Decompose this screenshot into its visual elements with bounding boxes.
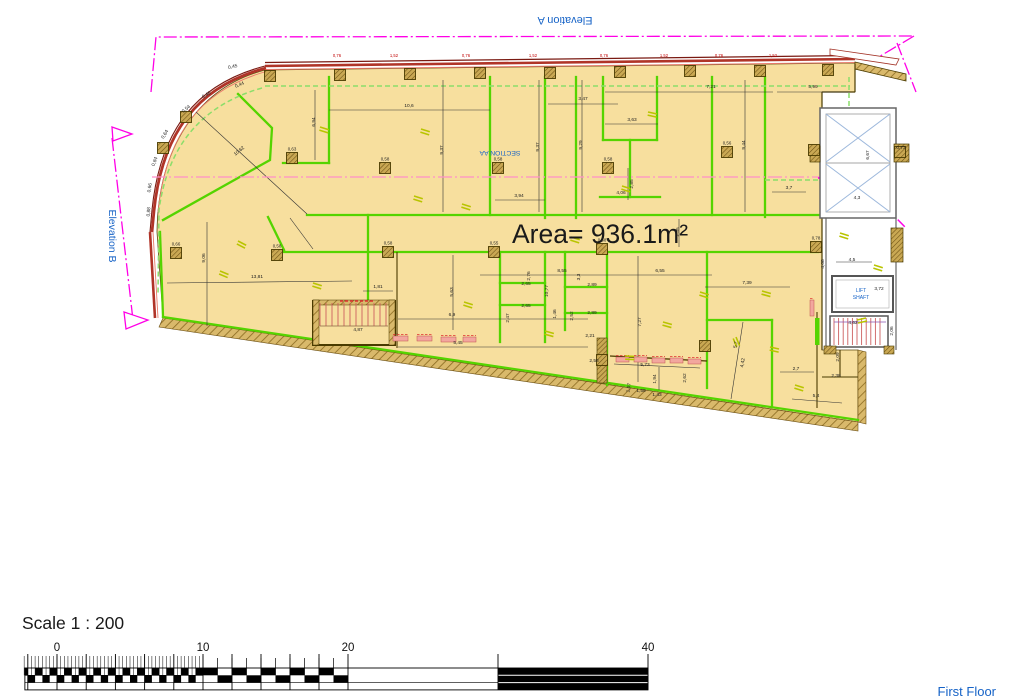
column-size-label: 0,56 — [723, 141, 732, 146]
dimension-label: 2,38 — [831, 373, 841, 379]
dimension-label: 1,46 — [552, 309, 558, 319]
dimension-label: 0,76 — [715, 53, 724, 58]
checker — [72, 675, 79, 682]
scale-tick-label: 0 — [54, 642, 60, 654]
dimension-label: 2,65 — [521, 281, 531, 287]
solid-block — [498, 668, 648, 690]
column-size-label: 0,78 — [812, 236, 821, 241]
column-icon — [158, 143, 169, 154]
elevation-b-label: Elevation B — [106, 209, 118, 262]
window-sill — [634, 357, 647, 362]
dimension-label: 7,39 — [742, 280, 752, 286]
dimension-label: 0,64 — [160, 129, 170, 140]
checker — [247, 675, 262, 682]
checker — [130, 675, 137, 682]
column-icon — [272, 250, 283, 261]
column-size-label: 0,58 — [381, 157, 390, 162]
dimension-label: 2,06 — [889, 326, 895, 336]
checker — [218, 675, 233, 682]
column-icon — [755, 66, 766, 77]
dimension-label: 3,47 — [578, 96, 588, 102]
window-sill — [688, 359, 701, 364]
dimension-label: 10,6 — [404, 103, 414, 109]
column-size-label: 0,63 — [288, 147, 297, 152]
column-icon — [383, 247, 394, 258]
lift-shaft-label-line2: SHAFT — [853, 295, 869, 301]
stairs-right — [830, 316, 888, 347]
column-icon — [545, 68, 556, 79]
scale-tick-label: 40 — [642, 642, 655, 654]
checker — [188, 675, 195, 682]
dimension-label: 1,52 — [769, 53, 778, 58]
dimension-label: 0,88 — [146, 207, 153, 217]
dimension-label: 1,52 — [390, 53, 399, 58]
column-icon — [809, 145, 820, 156]
dimension-label: 3,7 — [786, 185, 793, 191]
dimension-label: 2,65 — [521, 303, 531, 309]
dimension-label: 1,94 — [652, 374, 658, 384]
checker — [174, 675, 181, 682]
scale-bar: 0102040 — [24, 642, 654, 690]
window-sill — [810, 300, 814, 316]
dimension-label: 1,58 — [636, 388, 646, 394]
checker — [28, 675, 35, 682]
dimension-label: 2,89 — [587, 310, 597, 316]
checker — [319, 668, 334, 675]
dimension-label: 10,77 — [544, 285, 550, 297]
dimension-label: 0,84 — [151, 156, 160, 167]
column-icon — [405, 69, 416, 80]
column-size-label: 0,58 — [494, 157, 503, 162]
window-sill — [463, 337, 476, 342]
dimension-label: 0,45 — [228, 63, 239, 71]
dimension-label: 2,85 — [629, 179, 635, 189]
area-label: Area= 936.1m² — [512, 219, 688, 249]
dimension-label: 9,37 — [535, 142, 541, 152]
dimension-label: 8,55 — [557, 268, 567, 274]
column-icon — [335, 70, 346, 81]
column-icon — [685, 66, 696, 77]
dimension-label: 7,21 — [706, 84, 716, 90]
checker — [86, 675, 93, 682]
dimension-label: 2,09 — [835, 352, 841, 362]
column-icon — [722, 147, 733, 158]
column-size-label: 0,58 — [604, 157, 613, 162]
dimension-label: 1,81 — [373, 284, 383, 290]
scale-tick-label: 20 — [342, 642, 355, 654]
checker — [159, 675, 166, 682]
dimension-label: 3,94 — [514, 193, 524, 199]
column-icon — [615, 67, 626, 78]
dimension-label: 2,58 — [589, 358, 599, 364]
dimension-label: 4,08 — [820, 259, 826, 269]
dimension-label: 2,52 — [569, 311, 575, 321]
floorplan-drawing: 0,630,580,580,580,560,580,550,580,580,66… — [0, 0, 1015, 700]
floor-label: First Floor — [938, 684, 997, 699]
window-sill — [652, 358, 665, 363]
dimension-label: 2,62 — [682, 373, 688, 383]
dimension-label: 4,3 — [854, 195, 861, 201]
section-aa-label: SECTION AA — [479, 149, 520, 156]
dimension-label: 6,55 — [655, 268, 665, 274]
lift-shaft-label-line1: LIFT — [856, 288, 866, 294]
dimension-label: 5,45 — [453, 340, 463, 346]
checker — [261, 668, 276, 675]
checker — [57, 675, 64, 682]
dimension-label: 3,3 — [576, 273, 582, 280]
door-mark-icon — [839, 231, 850, 240]
column-icon — [823, 65, 834, 76]
window-sill — [393, 336, 408, 341]
checker — [101, 675, 108, 682]
dimension-label: 5,63 — [449, 287, 455, 297]
window-sill — [670, 358, 683, 363]
lift-shaft-room — [832, 276, 893, 312]
dimension-label: 6,94 — [311, 117, 317, 127]
dimension-label: 6,67 — [865, 150, 871, 160]
dimension-label: 5,4 — [813, 393, 820, 399]
column-icon — [489, 247, 500, 258]
dimension-label: 4,87 — [353, 327, 363, 333]
checker — [290, 668, 305, 675]
scale-label: Scale 1 : 200 — [22, 613, 124, 633]
dimension-label: 9,29 — [578, 140, 584, 150]
window-sill — [417, 336, 432, 341]
column-icon — [380, 163, 391, 174]
dimension-label: 2,89 — [587, 282, 597, 288]
column-icon — [603, 163, 614, 174]
dimension-label: 6,9 — [449, 312, 456, 318]
column-icon — [700, 341, 711, 352]
column-icon — [475, 68, 486, 79]
elevation-a-label: Elevation A — [537, 14, 593, 26]
checker — [115, 675, 122, 682]
dimension-label: 2,21 — [585, 333, 595, 339]
dimension-label: 9,06 — [201, 253, 207, 263]
dimension-label: 9,44 — [741, 140, 747, 150]
scale-tick-label: 10 — [197, 642, 210, 654]
dimension-label: 4,62 — [848, 320, 858, 326]
dimension-label: 13,81 — [251, 274, 263, 280]
dimension-label: 9,37 — [439, 145, 445, 155]
checker — [334, 675, 349, 682]
dimension-label: 0,76 — [462, 53, 471, 58]
dimension-label: 4,06 — [616, 190, 626, 196]
checker — [42, 675, 49, 682]
dimension-label: 4,5 — [849, 257, 856, 263]
column-size-label: 0,66 — [172, 242, 181, 247]
dimension-label: 3,72 — [874, 286, 884, 292]
dimension-label: 2,7 — [793, 366, 800, 372]
dimension-label: 0,76 — [600, 53, 609, 58]
checker — [203, 668, 218, 675]
lift-core — [810, 108, 909, 354]
checker — [145, 675, 152, 682]
dimension-label: 3,63 — [627, 117, 637, 123]
column-icon — [265, 71, 276, 82]
dimension-label: 1,52 — [529, 53, 538, 58]
annex-right-hatch — [858, 350, 866, 424]
dimension-label: 7,27 — [637, 317, 643, 327]
dimension-label: 0,66 — [146, 182, 154, 193]
dimension-label: 0,73 — [896, 145, 906, 151]
column-icon — [811, 242, 822, 253]
dimension-label: 0,76 — [333, 53, 342, 58]
column-icon — [493, 163, 504, 174]
dimension-label: 2,76 — [526, 271, 532, 281]
dimension-label: 5,7 — [732, 341, 739, 349]
door-mark-icon — [873, 263, 884, 272]
column-size-label: 0,55 — [490, 241, 499, 246]
dimension-label: 1,52 — [660, 53, 669, 58]
dimension-label: 5,99 — [808, 84, 818, 90]
checker — [276, 675, 291, 682]
column-icon — [287, 153, 298, 164]
column-size-label: 0,58 — [273, 244, 282, 249]
dimension-label: 1,43 — [652, 392, 662, 398]
checker — [305, 675, 320, 682]
dimension-label: 2,47 — [505, 313, 511, 323]
column-icon — [171, 248, 182, 259]
dimension-label: 5,73 — [640, 362, 650, 368]
checker — [232, 668, 247, 675]
column-size-label: 0,58 — [384, 241, 393, 246]
